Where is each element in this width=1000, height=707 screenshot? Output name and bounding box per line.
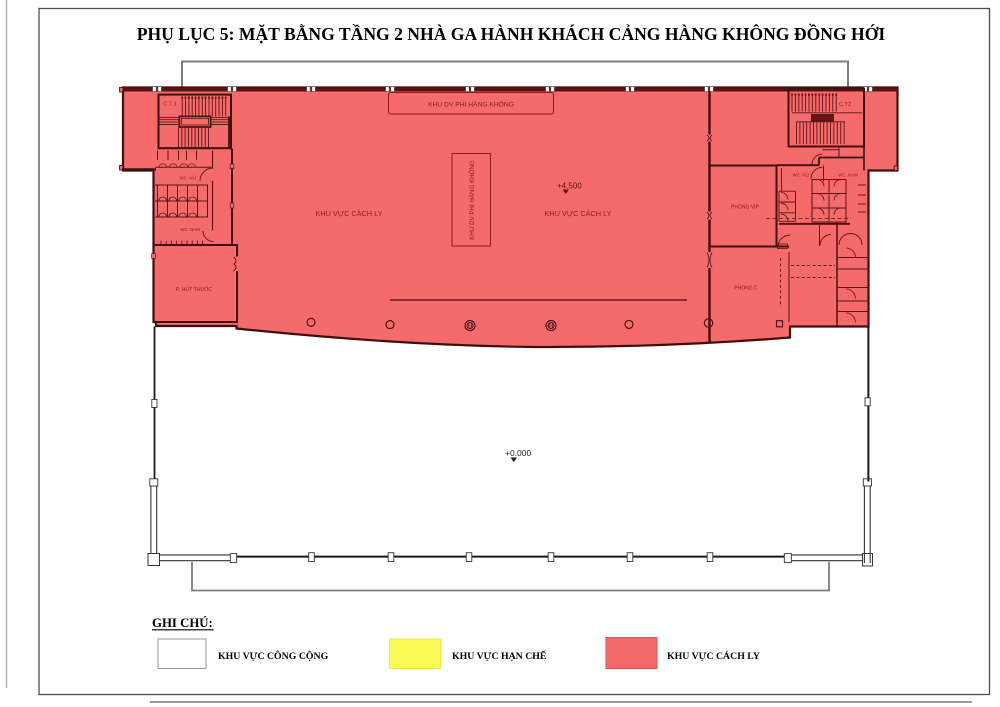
- svg-text:P. HÚT THUỐC: P. HÚT THUỐC: [176, 286, 212, 293]
- svg-text:KHU VỰC CÔNG CỘNG: KHU VỰC CÔNG CỘNG: [218, 649, 329, 662]
- svg-text:+0.000: +0.000: [505, 448, 532, 458]
- svg-text:WC. NỮ: WC. NỮ: [180, 176, 197, 181]
- svg-text:+4.500: +4.500: [557, 182, 582, 191]
- svg-text:KHU VỰC HẠN CHẾ: KHU VỰC HẠN CHẾ: [452, 649, 547, 662]
- svg-text:PHỤ LỤC 5: MẶT BẰNG TẦNG 2 NHÀ: PHỤ LỤC 5: MẶT BẰNG TẦNG 2 NHÀ GA HÀNH K…: [137, 24, 886, 44]
- svg-text:GHI CHÚ:: GHI CHÚ:: [152, 616, 213, 630]
- svg-text:WC. NỮ: WC. NỮ: [793, 173, 810, 178]
- svg-text:C.T2: C.T2: [839, 102, 851, 108]
- svg-text:PHÒNG C: PHÒNG C: [734, 285, 758, 292]
- svg-text:KHU VỰC CÁCH LY: KHU VỰC CÁCH LY: [667, 650, 760, 662]
- svg-text:PHÒNG VIP: PHÒNG VIP: [731, 204, 759, 211]
- svg-text:KHU DV PHI HÀNG KHÔNG: KHU DV PHI HÀNG KHÔNG: [428, 100, 514, 109]
- svg-text:KHU DV PHI HÀNG KHÔNG: KHU DV PHI HÀNG KHÔNG: [469, 160, 476, 240]
- svg-text:KHU VỰC CÁCH LY: KHU VỰC CÁCH LY: [545, 209, 612, 218]
- svg-text:WC. NAM: WC. NAM: [838, 173, 858, 178]
- svg-text:WC. NAM: WC. NAM: [180, 227, 200, 232]
- svg-text:KHU VỰC CÁCH LY: KHU VỰC CÁCH LY: [316, 209, 383, 218]
- svg-text:C.T 1: C.T 1: [163, 102, 177, 108]
